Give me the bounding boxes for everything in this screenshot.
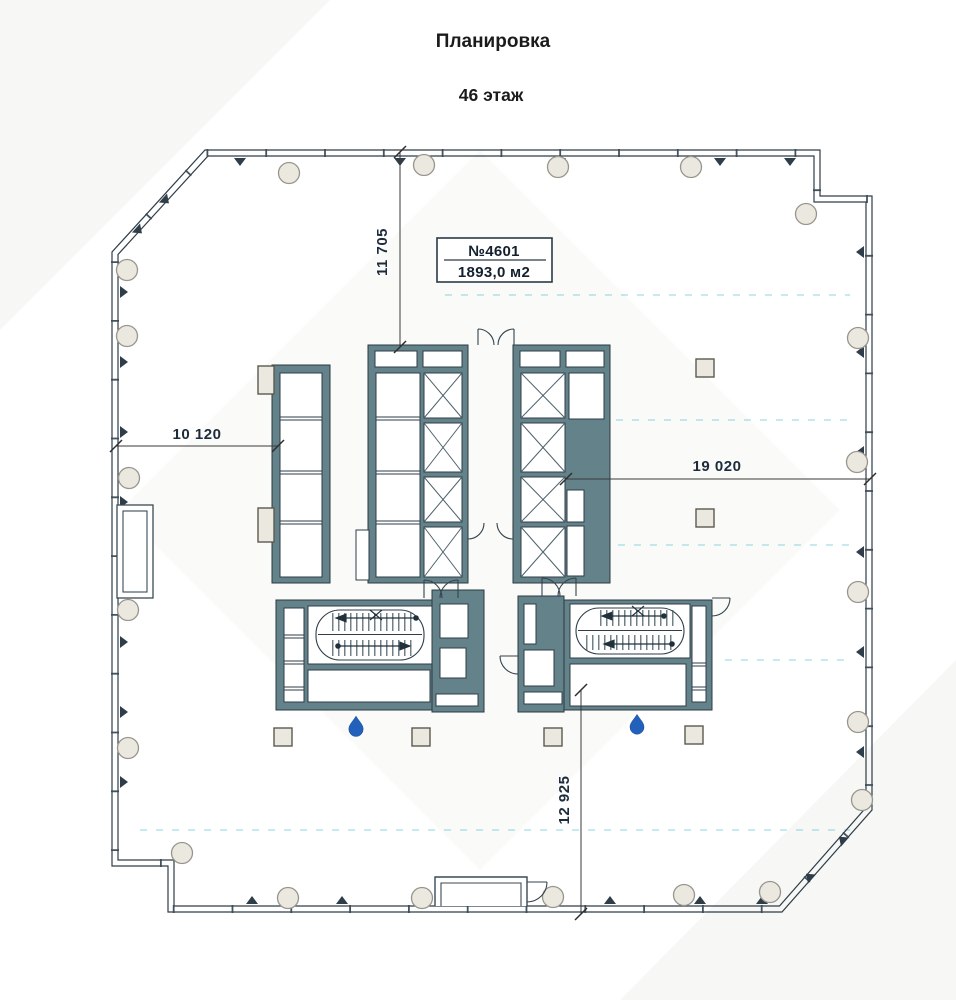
floor-plan: 11 705 10 120 19 020 12 925 №4601 1893,0…: [0, 0, 956, 1000]
bottom-entrance-room: [435, 877, 527, 906]
dimension-label: 10 120: [173, 426, 222, 443]
dimension-label: 12 925: [556, 776, 573, 825]
stairwell-right: [518, 596, 712, 712]
unit-number: №4601: [468, 243, 520, 260]
unit-area: 1893,0 м2: [458, 264, 530, 281]
unit-label-box: №4601 1893,0 м2: [437, 238, 552, 282]
stairwell-left: [276, 590, 484, 712]
core-right-block: [513, 345, 610, 583]
dimension-label: 19 020: [693, 458, 742, 475]
elevator-core: [258, 345, 610, 583]
core-middle-block: [356, 345, 468, 583]
page-title: Планировка: [436, 31, 551, 52]
vestibule-left: [117, 505, 153, 598]
page-titles: Планировка 46 этаж: [436, 31, 551, 105]
floor-subtitle: 46 этаж: [459, 85, 524, 105]
dimension-label: 11 705: [374, 228, 391, 276]
